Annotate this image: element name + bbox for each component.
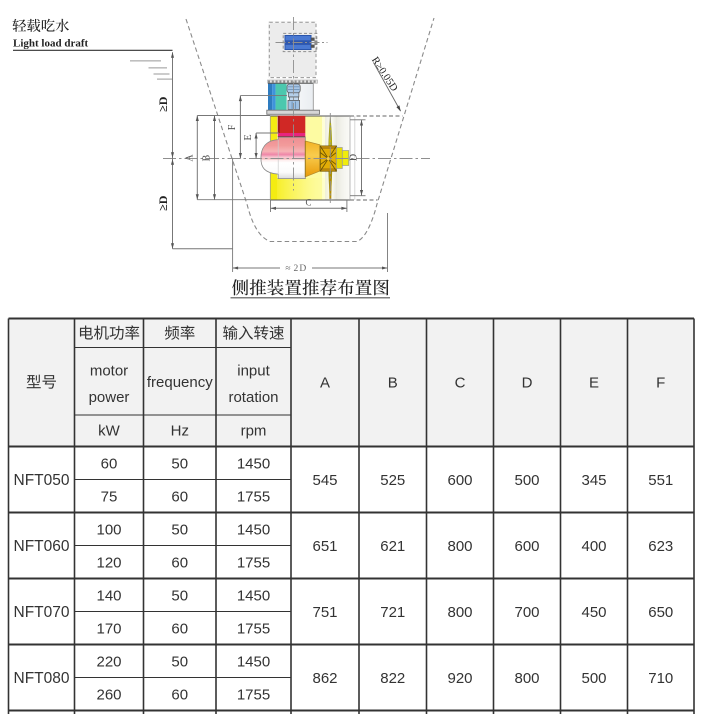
svg-text:1450: 1450 bbox=[237, 455, 270, 472]
svg-text:1755: 1755 bbox=[237, 686, 270, 703]
svg-text:E: E bbox=[589, 375, 599, 392]
svg-text:600: 600 bbox=[514, 538, 539, 555]
svg-text:862: 862 bbox=[312, 670, 337, 687]
svg-text:751: 751 bbox=[312, 604, 337, 621]
svg-text:400: 400 bbox=[581, 538, 606, 555]
svg-text:600: 600 bbox=[447, 472, 472, 489]
svg-text:450: 450 bbox=[581, 604, 606, 621]
svg-text:545: 545 bbox=[312, 472, 337, 489]
svg-text:260: 260 bbox=[96, 686, 121, 703]
svg-text:75: 75 bbox=[101, 488, 118, 505]
svg-text:C: C bbox=[305, 198, 311, 208]
svg-text:1755: 1755 bbox=[237, 554, 270, 571]
svg-text:A: A bbox=[184, 154, 195, 162]
svg-text:B: B bbox=[202, 154, 213, 161]
svg-text:1755: 1755 bbox=[237, 620, 270, 637]
svg-text:800: 800 bbox=[447, 538, 472, 555]
svg-text:500: 500 bbox=[581, 670, 606, 687]
svg-text:100: 100 bbox=[96, 521, 121, 538]
svg-text:721: 721 bbox=[380, 604, 405, 621]
svg-text:kW: kW bbox=[98, 423, 121, 440]
svg-text:700: 700 bbox=[514, 604, 539, 621]
svg-text:rpm: rpm bbox=[241, 423, 267, 440]
svg-text:1450: 1450 bbox=[237, 653, 270, 670]
svg-text:621: 621 bbox=[380, 538, 405, 555]
svg-text:50: 50 bbox=[171, 521, 188, 538]
svg-text:≥D: ≥D bbox=[156, 195, 170, 211]
svg-text:50: 50 bbox=[171, 587, 188, 604]
svg-text:60: 60 bbox=[171, 488, 188, 505]
svg-text:D: D bbox=[348, 154, 359, 161]
svg-text:822: 822 bbox=[380, 670, 405, 687]
svg-text:50: 50 bbox=[171, 653, 188, 670]
svg-text:140: 140 bbox=[96, 587, 121, 604]
svg-text:551: 551 bbox=[648, 472, 673, 489]
svg-text:60: 60 bbox=[171, 620, 188, 637]
svg-text:NFT050: NFT050 bbox=[14, 472, 70, 489]
svg-text:≥D: ≥D bbox=[156, 96, 170, 112]
svg-text:rotation: rotation bbox=[228, 389, 278, 406]
svg-text:60: 60 bbox=[101, 455, 118, 472]
svg-text:F: F bbox=[227, 124, 238, 130]
svg-text:F: F bbox=[656, 375, 665, 392]
svg-text:1450: 1450 bbox=[237, 587, 270, 604]
svg-text:A: A bbox=[320, 375, 330, 392]
svg-text:920: 920 bbox=[447, 670, 472, 687]
svg-text:motor: motor bbox=[90, 363, 128, 380]
svg-text:NFT070: NFT070 bbox=[14, 604, 70, 621]
svg-text:2D: 2D bbox=[293, 264, 307, 274]
svg-text:NFT060: NFT060 bbox=[14, 538, 70, 555]
svg-text:Hz: Hz bbox=[171, 423, 189, 440]
svg-text:651: 651 bbox=[312, 538, 337, 555]
svg-text:623: 623 bbox=[648, 538, 673, 555]
svg-text:120: 120 bbox=[96, 554, 121, 571]
svg-text:E: E bbox=[243, 134, 254, 140]
svg-text:frequency: frequency bbox=[147, 374, 213, 391]
svg-text:≈: ≈ bbox=[285, 264, 290, 274]
svg-text:800: 800 bbox=[514, 670, 539, 687]
svg-text:525: 525 bbox=[380, 472, 405, 489]
svg-text:NFT080: NFT080 bbox=[14, 670, 70, 687]
svg-text:1755: 1755 bbox=[237, 488, 270, 505]
svg-text:R≥0.05D: R≥0.05D bbox=[369, 55, 400, 94]
svg-text:60: 60 bbox=[171, 686, 188, 703]
svg-text:60: 60 bbox=[171, 554, 188, 571]
svg-text:power: power bbox=[89, 389, 130, 406]
svg-text:D: D bbox=[522, 375, 533, 392]
svg-text:650: 650 bbox=[648, 604, 673, 621]
svg-text:500: 500 bbox=[514, 472, 539, 489]
svg-text:B: B bbox=[388, 375, 398, 392]
svg-text:50: 50 bbox=[171, 455, 188, 472]
svg-text:800: 800 bbox=[447, 604, 472, 621]
svg-text:1450: 1450 bbox=[237, 521, 270, 538]
svg-text:input: input bbox=[237, 363, 270, 380]
svg-text:170: 170 bbox=[96, 620, 121, 637]
svg-text:Light load draft: Light load draft bbox=[13, 37, 89, 49]
svg-text:710: 710 bbox=[648, 670, 673, 687]
svg-text:345: 345 bbox=[581, 472, 606, 489]
svg-text:220: 220 bbox=[96, 653, 121, 670]
svg-text:C: C bbox=[455, 375, 466, 392]
